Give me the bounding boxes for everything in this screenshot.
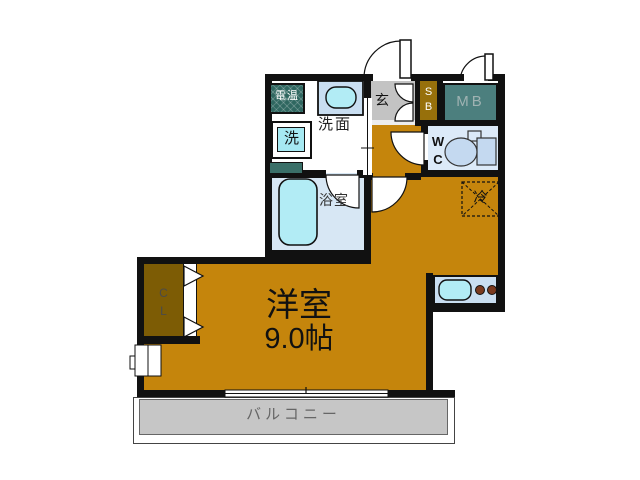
wall-closet-bottom: [144, 336, 200, 344]
meter-box-label: MB: [443, 94, 498, 110]
mb-door-opening: [464, 74, 488, 81]
entrance-label: 玄: [375, 93, 389, 108]
wall-kitchen-bottom: [426, 305, 505, 312]
entrance-door-icon: [364, 40, 411, 78]
floor-plan: 電温 洗 洗面 玄 S B MB W C 浴室 冷 C L 洋室 9.0帖 バル…: [0, 0, 640, 480]
water-heater-label: 電温: [269, 91, 305, 103]
wall-bathroom-top-stub: [357, 170, 371, 178]
wall-bottom-left: [137, 390, 225, 397]
wall-below-sb-mb: [415, 120, 505, 126]
refrigerator-label: 冷: [462, 190, 499, 205]
wall-below-kitchen: [426, 273, 433, 397]
balcony-label: バルコニー: [139, 407, 448, 423]
wall-main-top: [137, 257, 272, 264]
hallway-floor: [371, 125, 421, 180]
wall-bottom-right: [388, 390, 455, 397]
bathroom-floor: [272, 173, 364, 253]
wall-wc-bottom: [421, 170, 505, 177]
closet-bifold-door: [183, 263, 197, 338]
washroom-label: 洗面: [318, 117, 352, 133]
main-room-name: 洋室: [226, 286, 372, 324]
wall-wc-left-stub-top: [421, 126, 428, 134]
wall-left-lower: [137, 257, 144, 397]
wall-hall-bottom-right-stub: [405, 173, 421, 180]
wall-bathroom-right: [364, 173, 371, 264]
wall-washroom-right: [364, 74, 371, 100]
shoe-box-label: S B: [420, 85, 437, 115]
wall-right-upper: [498, 74, 505, 310]
wall-bathroom-bottom: [265, 250, 371, 264]
main-room-label: 洋室 9.0帖: [226, 286, 372, 356]
kitchen-counter: [433, 275, 498, 305]
utility-shelf: [269, 162, 303, 174]
washing-machine-label: 洗: [271, 131, 312, 147]
main-room-area: 9.0帖: [226, 324, 372, 356]
entrance-door-opening: [373, 74, 411, 81]
bathroom-label: 浴室: [319, 193, 349, 208]
toilet-room-label: W C: [429, 133, 447, 168]
closet-label: C L: [144, 284, 183, 320]
